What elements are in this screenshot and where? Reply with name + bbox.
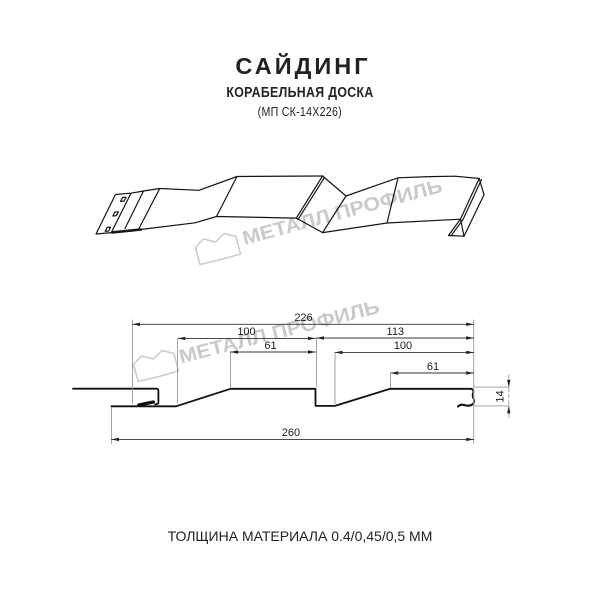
svg-text:14: 14: [495, 390, 507, 402]
svg-text:100: 100: [394, 340, 412, 352]
svg-text:МЕТАЛЛ ПРОФИЛЬ: МЕТАЛЛ ПРОФИЛЬ: [240, 175, 445, 250]
svg-text:260: 260: [282, 427, 300, 439]
svg-text:100: 100: [237, 326, 255, 338]
svg-text:МЕТАЛЛ ПРОФИЛЬ: МЕТАЛЛ ПРОФИЛЬ: [177, 296, 382, 368]
svg-text:113: 113: [387, 326, 405, 338]
svg-text:226: 226: [294, 312, 312, 324]
svg-text:61: 61: [264, 340, 276, 352]
svg-text:61: 61: [427, 361, 439, 373]
